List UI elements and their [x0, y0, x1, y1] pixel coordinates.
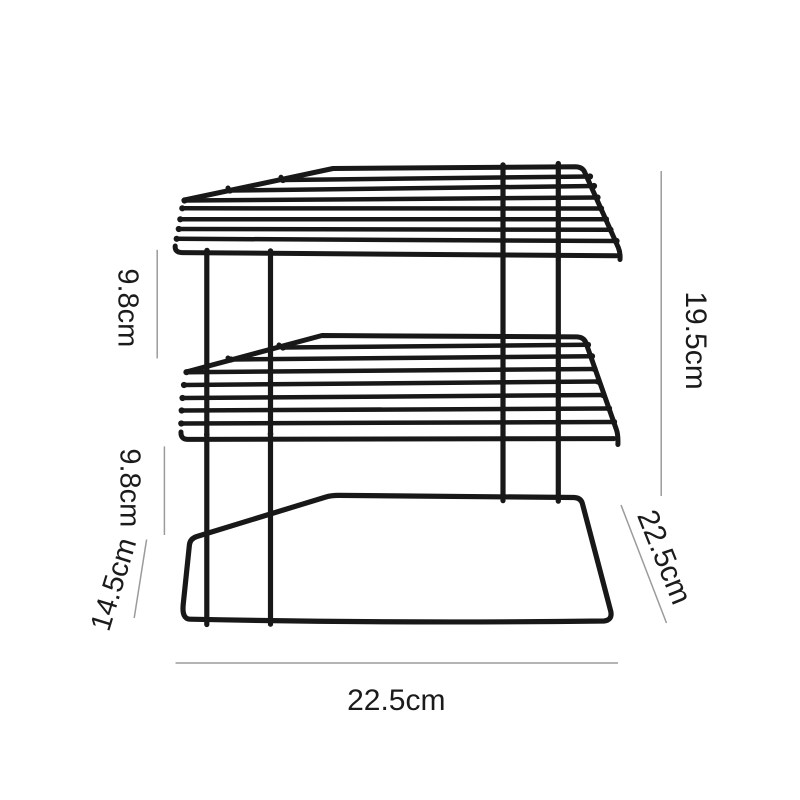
svg-text:19.5cm: 19.5cm: [679, 291, 712, 389]
svg-text:9.8cm: 9.8cm: [113, 448, 145, 527]
svg-text:9.8cm: 9.8cm: [111, 268, 143, 347]
svg-text:22.5cm: 22.5cm: [347, 684, 445, 717]
